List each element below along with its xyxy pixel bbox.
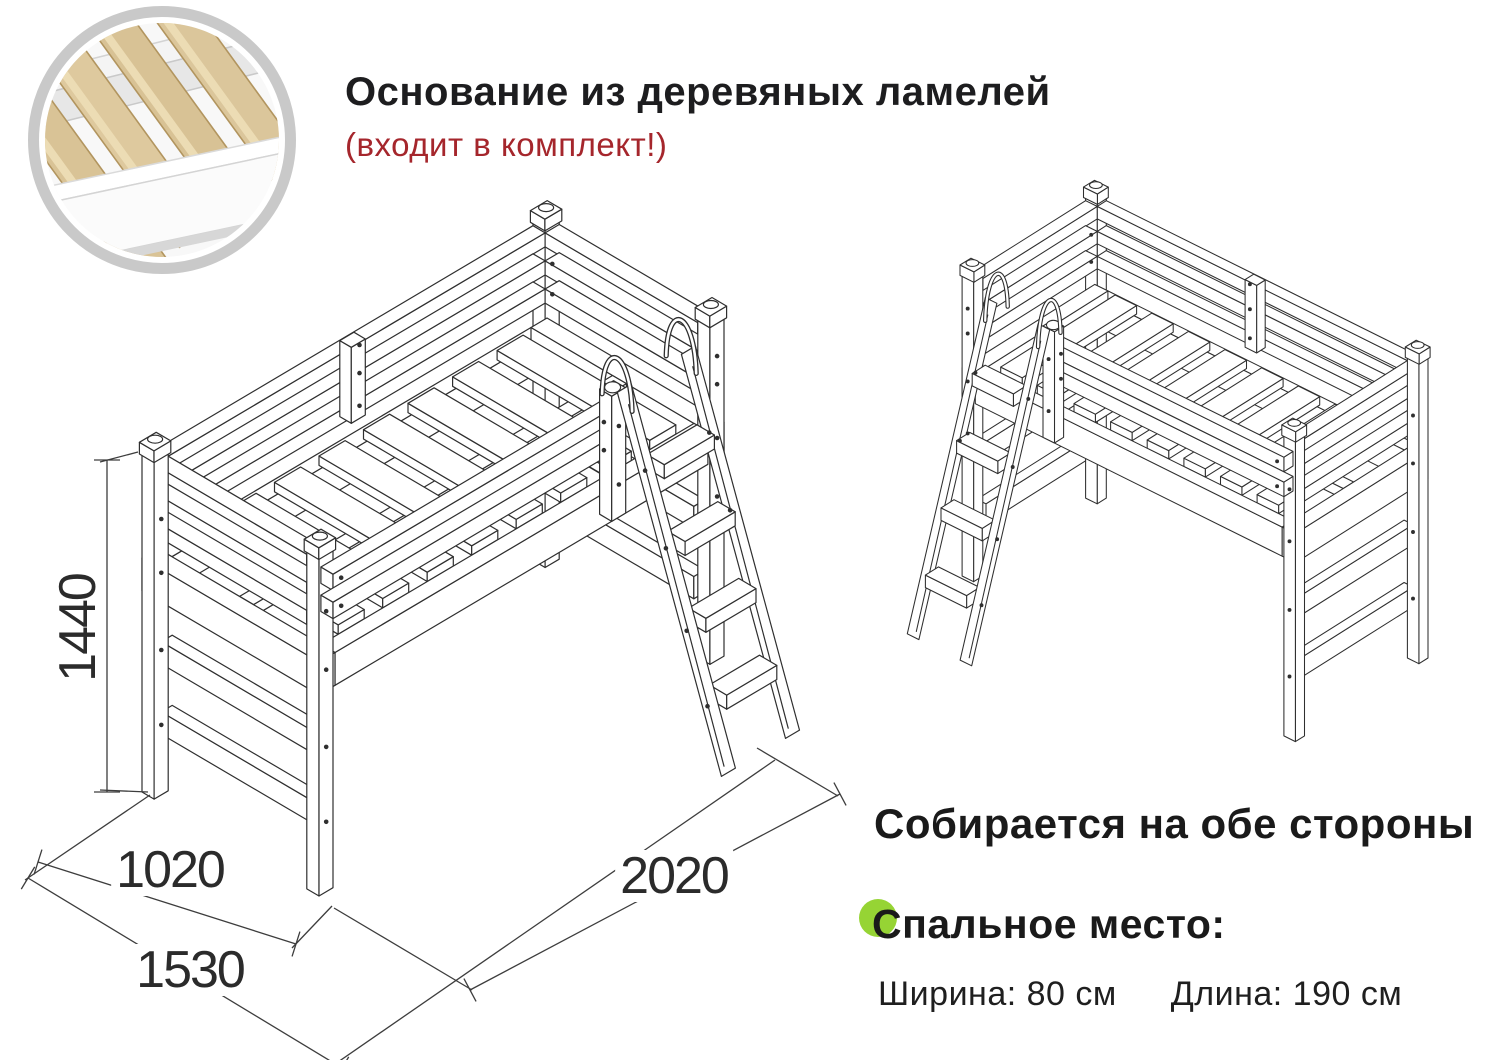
wood-slats-photo-art: [39, 17, 285, 263]
dim-length-2020: 2020: [615, 850, 733, 902]
dim-height-1440: 1440: [52, 569, 104, 687]
page-title: Основание из деревяных ламелей: [345, 70, 1051, 115]
sleeping-area-title: Спальное место:: [872, 901, 1226, 948]
included-note: (входит в комплект!): [345, 126, 667, 164]
both-sides-note: Собирается на обе стороны: [874, 800, 1474, 848]
loft-bed-drawing-right: [907, 180, 1430, 741]
sleeping-width: Ширина: 80 см: [878, 975, 1117, 1013]
loft-bed-infographic: Основание из деревяных ламелей (входит в…: [0, 0, 1490, 1060]
loft-bed-drawing-left: [139, 201, 799, 896]
sleeping-length: Длина: 190 см: [1171, 975, 1402, 1013]
dim-width-1020: 1020: [111, 844, 229, 896]
wood-slats-photo: [28, 6, 296, 274]
sleeping-area-dimensions: Ширина: 80 см Длина: 190 см: [878, 975, 1402, 1014]
dim-width-1530: 1530: [131, 944, 249, 996]
